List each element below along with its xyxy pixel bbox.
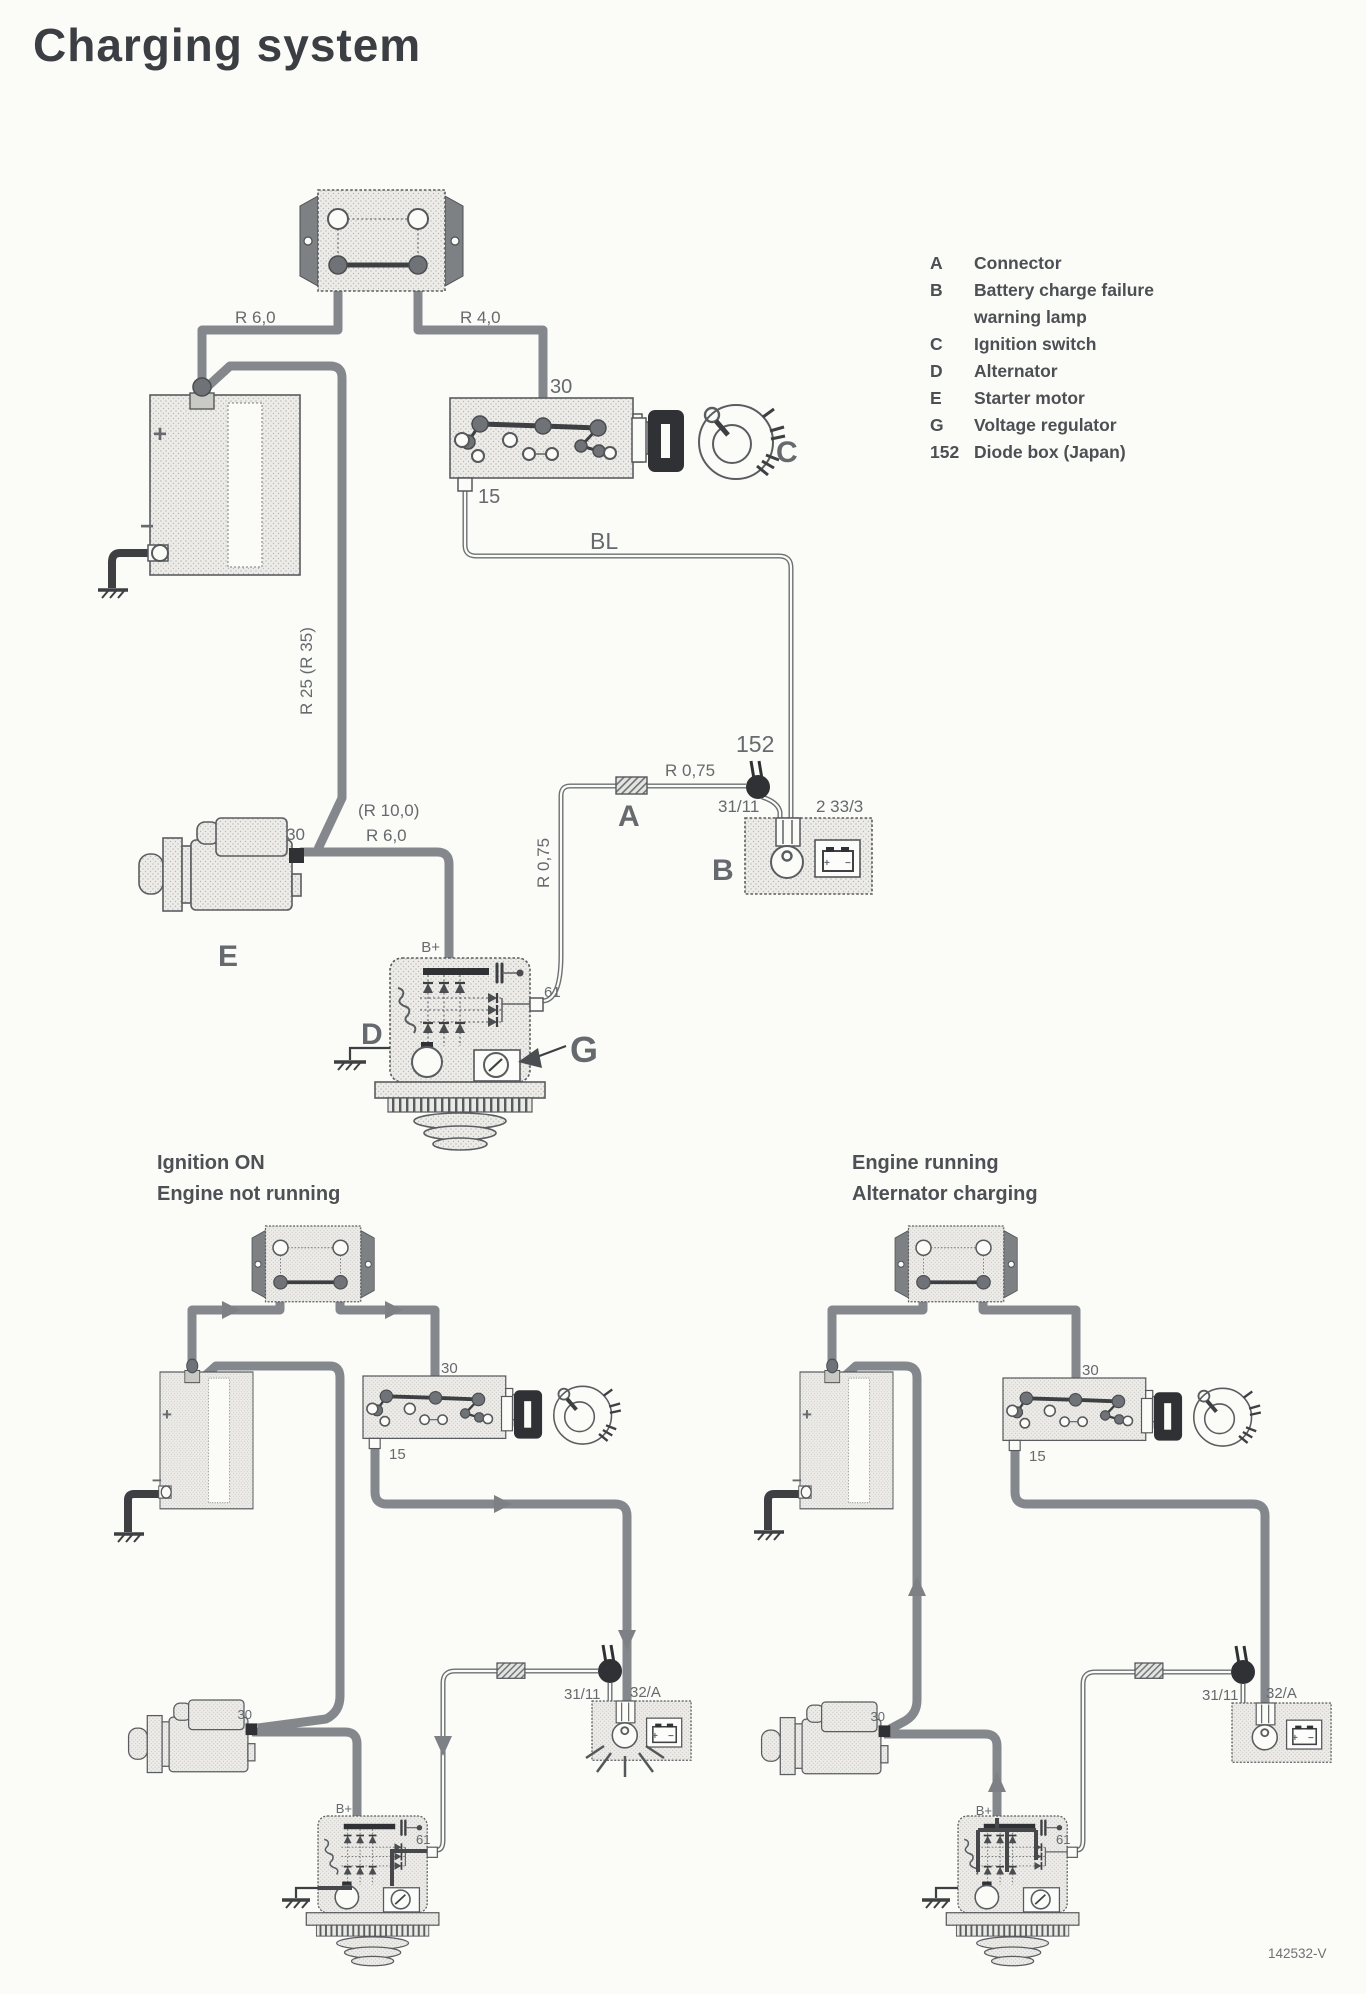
lamp-battery-icon-minus: −: [1308, 1733, 1314, 1744]
lamp-battery-icon-minus: −: [845, 858, 851, 869]
junction-box: [300, 190, 463, 291]
flow-arrow-right: [385, 1301, 403, 1319]
label-e: E: [218, 940, 238, 973]
lamp-battery-icon-plus: +: [824, 858, 830, 869]
label-wire-r60-starter: R 6,0: [366, 826, 407, 845]
lamp-battery-icon-plus: +: [652, 1731, 658, 1742]
legend-key: E: [930, 385, 974, 412]
manual-page: + − R 6,0 R 4,0 30 15 BL R 25 (R 35): [0, 0, 1366, 1994]
flow-arrow-down: [618, 1630, 636, 1650]
lamp-battery-icon-plus: +: [1292, 1733, 1298, 1744]
alternator-ground-lead: [936, 1888, 958, 1898]
label-bplus: B+: [976, 1803, 992, 1818]
label-terminal-32-a: 32/A: [1266, 1685, 1297, 1702]
battery: [148, 378, 300, 575]
ignition-switch: [1003, 1378, 1157, 1451]
alternator: [375, 958, 545, 1150]
warning-lamp-box: [1232, 1703, 1331, 1762]
label-terminal-15: 15: [389, 1446, 406, 1463]
label-61: 61: [1056, 1832, 1070, 1847]
connector-a: [616, 777, 647, 794]
right-diagram: + − 30 15 31/11 32/A B+ 61 30 + −: [754, 1226, 1331, 1966]
legend-label: Starter motor: [974, 385, 1085, 412]
legend-item: E Starter motor: [930, 385, 1184, 412]
flow-arrow-up: [908, 1576, 926, 1596]
connector: [497, 1663, 525, 1678]
label-wire-r075-v: R 0,75: [534, 838, 553, 888]
label-152: 152: [736, 731, 774, 757]
label-wire-r25: R 25 (R 35): [297, 627, 316, 715]
legend-item: C Ignition switch: [930, 331, 1184, 358]
junction-box: [895, 1226, 1017, 1302]
ignition-switch: [363, 1376, 517, 1449]
battery-plus-mark: +: [802, 1405, 812, 1424]
label-terminal-15: 15: [478, 486, 500, 508]
battery: [159, 1359, 253, 1509]
key-icon: [1142, 1388, 1261, 1446]
label-wire-r40: R 4,0: [460, 308, 501, 327]
battery-minus-mark: −: [792, 1471, 802, 1490]
label-terminal-31-11: 31/11: [564, 1686, 600, 1703]
label-g: G: [570, 1029, 598, 1070]
battery-plus-mark: +: [153, 421, 167, 448]
label-starter-30: 30: [238, 1707, 252, 1722]
label-bplus: B+: [421, 939, 440, 956]
legend-label: Alternator: [974, 358, 1058, 385]
label-d: D: [361, 1018, 383, 1051]
warning-lamp-box: [592, 1701, 691, 1760]
diode-box-junction: [1231, 1646, 1255, 1684]
connector: [1135, 1663, 1163, 1678]
legend-label: Ignition switch: [974, 331, 1097, 358]
starter-motor: [139, 818, 304, 911]
label-terminal-15: 15: [1029, 1448, 1046, 1465]
left-diagram: + − 30: [114, 1226, 691, 1966]
legend-item: 152 Diode box (Japan): [930, 439, 1184, 466]
label-terminal-2-33-3: 2 33/3: [816, 797, 863, 816]
battery: [799, 1359, 893, 1509]
lamp-battery-icon-minus: −: [668, 1731, 674, 1742]
caption-ignition-on: Ignition ON Engine not running: [157, 1148, 340, 1210]
battery-plus-mark: +: [162, 1405, 172, 1424]
label-starter-30: 30: [286, 825, 305, 844]
legend-label: Battery charge failure warning lamp: [974, 277, 1184, 331]
flow-arrow-down: [434, 1736, 452, 1756]
caption-line: Engine not running: [157, 1179, 340, 1210]
label-61: 61: [544, 984, 561, 1001]
flow-arrow-right: [494, 1495, 512, 1513]
label-wire-r075-h: R 0,75: [665, 761, 715, 780]
flow-arrow-up: [988, 1772, 1006, 1792]
legend-key: 152: [930, 439, 974, 466]
label-terminal-30: 30: [441, 1360, 458, 1377]
caption-line: Engine running: [852, 1148, 1038, 1179]
legend-key: C: [930, 331, 974, 358]
battery-minus-mark: −: [152, 1471, 162, 1490]
label-a: A: [618, 800, 640, 833]
label-bplus: B+: [336, 1801, 352, 1816]
key-icon: [502, 1386, 621, 1444]
label-starter-30: 30: [871, 1709, 885, 1724]
legend-item: G Voltage regulator: [930, 412, 1184, 439]
label-terminal-30: 30: [550, 376, 572, 398]
label-wire-bl: BL: [590, 528, 618, 554]
ignition-switch: [450, 398, 648, 491]
wire-bl: [465, 491, 791, 820]
alternator-ground-lead: [296, 1888, 318, 1898]
label-b: B: [712, 854, 734, 887]
legend-label: Connector: [974, 250, 1062, 277]
diode-box-junction: [746, 761, 770, 799]
label-terminal-31-11: 31/11: [718, 797, 759, 816]
legend-key: A: [930, 250, 974, 277]
document-number: 142532-V: [1268, 1946, 1327, 1961]
flow-arrow-right: [222, 1301, 240, 1319]
label-terminal-32-a: 32/A: [630, 1684, 661, 1701]
label-terminal-31-11: 31/11: [1202, 1687, 1238, 1704]
label-c: C: [776, 436, 798, 469]
caption-line: Alternator charging: [852, 1179, 1038, 1210]
legend-key: D: [930, 358, 974, 385]
label-61: 61: [416, 1832, 430, 1847]
label-wire-r60-top: R 6,0: [235, 308, 276, 327]
diode-box-junction: [598, 1645, 622, 1683]
key-icon: [632, 405, 785, 479]
caption-line: Ignition ON: [157, 1148, 340, 1179]
battery-minus-mark: −: [140, 513, 154, 540]
legend-key: B: [930, 277, 974, 331]
legend-item: A Connector: [930, 250, 1184, 277]
legend-item: B Battery charge failure warning lamp: [930, 277, 1184, 331]
caption-engine-running: Engine running Alternator charging: [852, 1148, 1038, 1210]
legend-item: D Alternator: [930, 358, 1184, 385]
warning-lamp-box: [745, 818, 872, 894]
legend-label: Diode box (Japan): [974, 439, 1126, 466]
main-diagram: + − R 6,0 R 4,0 30 15 BL R 25 (R 35): [98, 190, 872, 1150]
wire-r075-to-61: [536, 786, 746, 1001]
legend: A Connector B Battery charge failure war…: [930, 250, 1184, 466]
junction-box: [252, 1226, 374, 1302]
label-terminal-30: 30: [1082, 1362, 1099, 1379]
page-title: Charging system: [33, 18, 421, 72]
legend-label: Voltage regulator: [974, 412, 1117, 439]
legend-key: G: [930, 412, 974, 439]
label-wire-r100: (R 10,0): [358, 801, 419, 820]
